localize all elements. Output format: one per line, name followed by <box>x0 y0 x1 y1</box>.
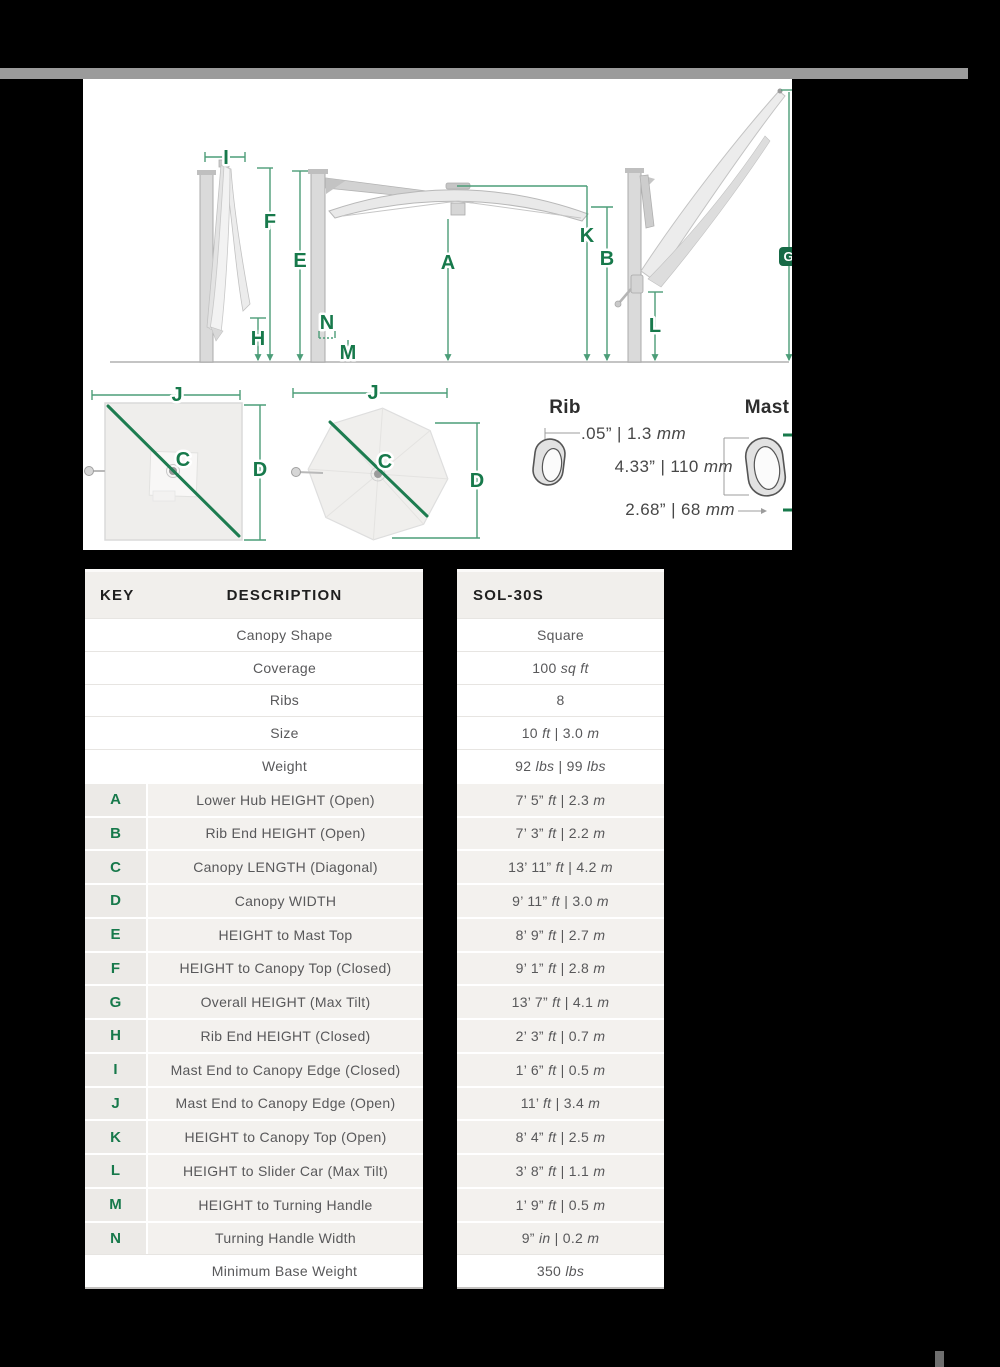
row-key-letter: M <box>85 1189 146 1221</box>
row-key-letter: A <box>85 784 146 816</box>
row-value: 7’ 5” ft | 2.3 m <box>457 782 664 816</box>
spec-table-right-body: Square100 sq ft810 ft | 3.0 m92 lbs | 99… <box>457 618 664 1287</box>
row-description: HEIGHT to Canopy Top (Open) <box>146 1121 423 1153</box>
row-key-letter: B <box>85 818 146 850</box>
spec-table-values: SOL-30S Square100 sq ft810 ft | 3.0 m92 … <box>457 569 664 1287</box>
row-value: Square <box>457 618 664 651</box>
mast-height-value: 4.33” | 110 mm <box>615 457 733 477</box>
table-row: EHEIGHT to Mast Top <box>85 917 423 951</box>
table-row: HRib End HEIGHT (Closed) <box>85 1018 423 1052</box>
table-row: LHEIGHT to Slider Car (Max Tilt) <box>85 1153 423 1187</box>
row-description: Minimum Base Weight <box>146 1255 423 1287</box>
umbrella-diagram-panel: I F H E A K <box>83 79 792 550</box>
rib-wall-thickness-value: .05” | 1.3 mm <box>581 424 686 444</box>
row-description: Coverage <box>146 652 423 684</box>
description-column-header: DESCRIPTION <box>146 587 423 604</box>
dimension-label-m: M <box>340 342 357 364</box>
row-value: 9’ 1” ft | 2.8 m <box>457 951 664 985</box>
model-column-header: SOL-30S <box>457 587 544 604</box>
table-row: Weight <box>85 749 423 782</box>
row-key-letter: N <box>85 1223 146 1255</box>
table-row: Canopy Shape <box>85 618 423 651</box>
row-key-letter <box>85 750 146 782</box>
row-key-letter: J <box>85 1088 146 1120</box>
mast-width-value: 2.68” | 68 mm <box>625 500 735 520</box>
row-description: Size <box>146 717 423 749</box>
row-value: 9” in | 0.2 m <box>457 1221 664 1255</box>
closed-umbrella-diagram <box>197 160 250 362</box>
row-value: 8 <box>457 684 664 717</box>
row-key-letter: L <box>85 1155 146 1187</box>
row-description: Canopy WIDTH <box>146 885 423 917</box>
row-value: 350 lbs <box>457 1254 664 1287</box>
row-key-letter <box>85 717 146 749</box>
row-key-letter <box>85 1255 146 1287</box>
key-column-header: KEY <box>85 587 146 604</box>
row-value: 1’ 6” ft | 0.5 m <box>457 1052 664 1086</box>
row-key-letter: H <box>85 1020 146 1052</box>
row-description: Ribs <box>146 685 423 717</box>
table-row: CCanopy LENGTH (Diagonal) <box>85 849 423 883</box>
row-description: Lower Hub HEIGHT (Open) <box>146 784 423 816</box>
row-value: 1’ 9” ft | 0.5 m <box>457 1187 664 1221</box>
scroll-indicator[interactable] <box>935 1351 944 1367</box>
row-key-letter: D <box>85 885 146 917</box>
dimension-label-g: G <box>783 249 792 264</box>
dimension-label-h: H <box>251 328 265 350</box>
table-row: Minimum Base Weight <box>85 1254 423 1287</box>
row-description: Canopy Shape <box>146 619 423 651</box>
table-row: BRib End HEIGHT (Open) <box>85 816 423 850</box>
table-row: IMast End to Canopy Edge (Closed) <box>85 1052 423 1086</box>
row-description: Mast End to Canopy Edge (Closed) <box>146 1054 423 1086</box>
mast-detail-title: Mast <box>735 397 799 419</box>
table-row: GOverall HEIGHT (Max Tilt) <box>85 984 423 1018</box>
dimension-label-l: L <box>649 315 661 337</box>
row-value: 2’ 3” ft | 0.7 m <box>457 1018 664 1052</box>
row-description: Turning Handle Width <box>146 1223 423 1255</box>
dimension-label-j-octagon: J <box>367 382 378 404</box>
row-value: 8’ 9” ft | 2.7 m <box>457 917 664 951</box>
dimension-label-b: B <box>600 248 614 270</box>
dimension-label-j-square: J <box>171 384 182 406</box>
square-canopy-top-view <box>85 403 243 540</box>
dimension-label-f: F <box>264 211 276 233</box>
dimension-label-i: I <box>223 147 229 169</box>
row-value: 3’ 8” ft | 1.1 m <box>457 1153 664 1187</box>
dimension-label-k: K <box>580 225 595 247</box>
row-key-letter: G <box>85 986 146 1018</box>
rib-detail-title: Rib <box>535 397 595 419</box>
row-key-letter: C <box>85 851 146 883</box>
row-description: HEIGHT to Slider Car (Max Tilt) <box>146 1155 423 1187</box>
row-value: 10 ft | 3.0 m <box>457 716 664 749</box>
table-row: FHEIGHT to Canopy Top (Closed) <box>85 951 423 985</box>
table-row: NTurning Handle Width <box>85 1221 423 1255</box>
spec-table-left-body: Canopy ShapeCoverageRibsSizeWeightALower… <box>85 618 423 1287</box>
dimension-label-e: E <box>293 250 306 272</box>
row-value: 13’ 7” ft | 4.1 m <box>457 984 664 1018</box>
spec-table-header-row: KEY DESCRIPTION <box>85 569 423 618</box>
dimension-label-d-octagon: D <box>470 470 484 492</box>
table-row: MHEIGHT to Turning Handle <box>85 1187 423 1221</box>
row-value: 100 sq ft <box>457 651 664 684</box>
row-description: Weight <box>146 750 423 782</box>
umbrella-dimension-diagram: I F H E A K <box>83 79 792 550</box>
top-divider-bar <box>0 68 968 79</box>
row-description: HEIGHT to Mast Top <box>146 919 423 951</box>
row-description: Mast End to Canopy Edge (Open) <box>146 1088 423 1120</box>
row-key-letter <box>85 619 146 651</box>
row-description: Canopy LENGTH (Diagonal) <box>146 851 423 883</box>
row-key-letter <box>85 652 146 684</box>
dimension-label-d-square: D <box>253 459 267 481</box>
octagon-canopy-top-view <box>292 403 453 544</box>
row-value: 8’ 4” ft | 2.5 m <box>457 1119 664 1153</box>
dimension-label-n: N <box>320 312 334 334</box>
dimension-label-a: A <box>441 252 455 274</box>
row-description: Rib End HEIGHT (Closed) <box>146 1020 423 1052</box>
row-value: 11’ ft | 3.4 m <box>457 1086 664 1120</box>
model-header-row: SOL-30S <box>457 569 664 618</box>
spec-table-descriptions: KEY DESCRIPTION Canopy ShapeCoverageRibs… <box>85 569 423 1287</box>
table-row: Ribs <box>85 684 423 717</box>
row-key-letter: F <box>85 953 146 985</box>
row-key-letter: K <box>85 1121 146 1153</box>
row-value: 13’ 11” ft | 4.2 m <box>457 849 664 883</box>
table-row: JMast End to Canopy Edge (Open) <box>85 1086 423 1120</box>
tilted-umbrella-diagram <box>615 89 785 363</box>
table-row: Size <box>85 716 423 749</box>
row-description: Rib End HEIGHT (Open) <box>146 818 423 850</box>
table-row: KHEIGHT to Canopy Top (Open) <box>85 1119 423 1153</box>
row-value: 7’ 3” ft | 2.2 m <box>457 816 664 850</box>
row-key-letter <box>85 685 146 717</box>
dimension-label-c-octagon: C <box>378 451 392 473</box>
dimension-label-c-square: C <box>176 449 190 471</box>
table-row: Coverage <box>85 651 423 684</box>
table-row: ALower Hub HEIGHT (Open) <box>85 782 423 816</box>
table-row: DCanopy WIDTH <box>85 883 423 917</box>
row-value: 92 lbs | 99 lbs <box>457 749 664 782</box>
row-description: HEIGHT to Canopy Top (Closed) <box>146 953 423 985</box>
row-value: 9’ 11” ft | 3.0 m <box>457 883 664 917</box>
row-description: HEIGHT to Turning Handle <box>146 1189 423 1221</box>
row-key-letter: E <box>85 919 146 951</box>
row-key-letter: I <box>85 1054 146 1086</box>
row-description: Overall HEIGHT (Max Tilt) <box>146 986 423 1018</box>
rib-cross-section <box>531 428 580 487</box>
